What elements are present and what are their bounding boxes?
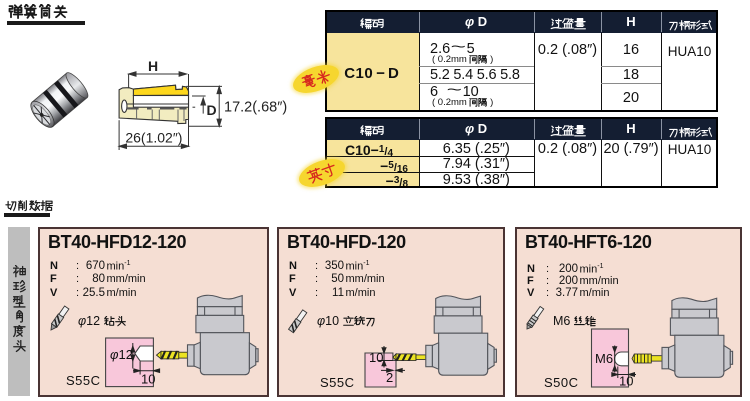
svg-text:26(1.02″): 26(1.02″) — [125, 130, 182, 146]
svg-text:H: H — [148, 58, 158, 74]
svg-text:10: 10 — [369, 350, 383, 365]
svg-text:D: D — [207, 102, 217, 118]
svg-text:2: 2 — [386, 370, 393, 385]
svg-text:10: 10 — [141, 372, 155, 387]
svg-text:M6: M6 — [595, 351, 613, 366]
svg-text:10: 10 — [619, 374, 633, 389]
svg-text:17.2(.68″): 17.2(.68″) — [224, 100, 287, 116]
svg-text:φ12: φ12 — [110, 347, 133, 362]
